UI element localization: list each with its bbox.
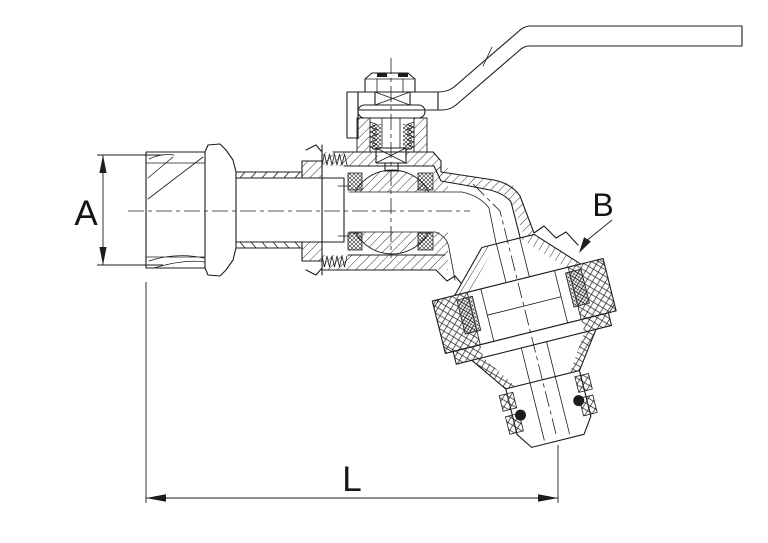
dim-label-b: B [592, 187, 613, 223]
stem-washer [358, 105, 425, 118]
stem-thread-mark-left [377, 73, 387, 77]
dim-a-lines [97, 155, 163, 265]
seat-top-left [348, 173, 362, 190]
barb-ring-right-1 [575, 373, 592, 392]
seat-top-right [418, 173, 433, 190]
drawing-canvas: A L B [0, 0, 768, 543]
nozzle-bore [521, 342, 569, 440]
dim-a-arrow-up [99, 155, 106, 173]
barb-ring-left-1 [499, 392, 516, 411]
seat-bottom-right [418, 233, 433, 250]
dim-a-arrow-down [99, 247, 106, 265]
lever-handle [438, 26, 742, 110]
socket-hatch-bottom [302, 242, 322, 261]
callout-b-leader [585, 220, 612, 242]
handle-stop-tab [347, 92, 358, 138]
seat-bottom-left [348, 233, 362, 250]
dim-l-arrow-left [146, 494, 166, 501]
gland-wall-left [357, 118, 370, 152]
valve-technical-drawing: A L B [0, 0, 768, 543]
dimension-a: A [74, 155, 163, 265]
thread-ticks [240, 172, 300, 248]
outlet-wall-hatch-bottom [434, 232, 448, 255]
dim-label-l: L [342, 460, 361, 499]
callout-b: B [579, 187, 614, 253]
ball-port [349, 192, 435, 232]
flange [205, 144, 236, 276]
gland-wall-right [414, 118, 427, 152]
outlet-wall-hatch-top [434, 166, 448, 192]
packing-right [403, 124, 412, 150]
threaded-pipe [236, 172, 344, 248]
hex-end [146, 152, 205, 268]
dim-l-arrow-right [538, 494, 558, 501]
handle-bar [438, 26, 742, 110]
callout-b-arrow [579, 237, 591, 253]
socket-hatch-top [302, 161, 322, 178]
stem-thread-mark-right [398, 73, 408, 77]
packing-left [372, 124, 381, 150]
dim-label-a: A [74, 194, 98, 233]
